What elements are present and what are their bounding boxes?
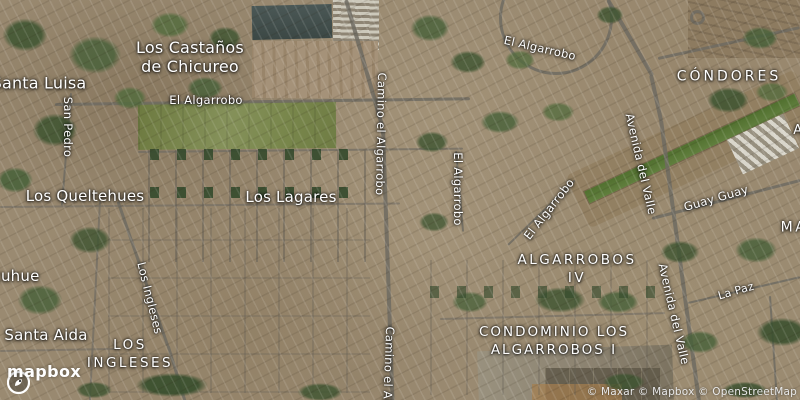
road-label-el-algarrobo-vertical: El Algarrobo bbox=[451, 152, 465, 226]
place-label-cuhue: cuhue bbox=[0, 268, 40, 286]
area-label-algarrobos-iv: ALGARROBOS IV bbox=[517, 251, 636, 287]
mapbox-wordmark: mapbox bbox=[7, 362, 81, 381]
map-canvas[interactable]: Los Castaños de Chicureo Santa Luisa El … bbox=[0, 0, 800, 400]
place-label-los-queltehues: Los Queltehues bbox=[26, 188, 145, 206]
area-label-condominio-los-algarrobos: CONDOMINIO LOS ALGARROBOS I bbox=[479, 323, 629, 359]
area-label-condores: CÓNDORES bbox=[677, 68, 782, 87]
area-label-edge-ma: MA bbox=[781, 219, 800, 238]
place-label-santa-aida: Santa Aida bbox=[4, 327, 87, 345]
area-label-edge-a: A bbox=[793, 122, 800, 140]
road-label-el-algarrobo-nw: El Algarrobo bbox=[169, 93, 243, 107]
attribution-links[interactable]: © Maxar © Mapbox © OpenStreetMap bbox=[587, 386, 797, 398]
place-label-los-lagares: Los Lagares bbox=[245, 189, 336, 207]
road-label-san-pedro: San Pedro bbox=[61, 97, 75, 157]
area-label-los-ingleses: LOS INGLESES bbox=[87, 336, 173, 372]
place-label-los-castanos-de-chicureo: Los Castaños de Chicureo bbox=[136, 39, 244, 77]
place-label-santa-luisa: Santa Luisa bbox=[0, 75, 86, 94]
road-label-camino-el-algarrobo-upper: Camino el Algarrobo bbox=[373, 72, 389, 195]
